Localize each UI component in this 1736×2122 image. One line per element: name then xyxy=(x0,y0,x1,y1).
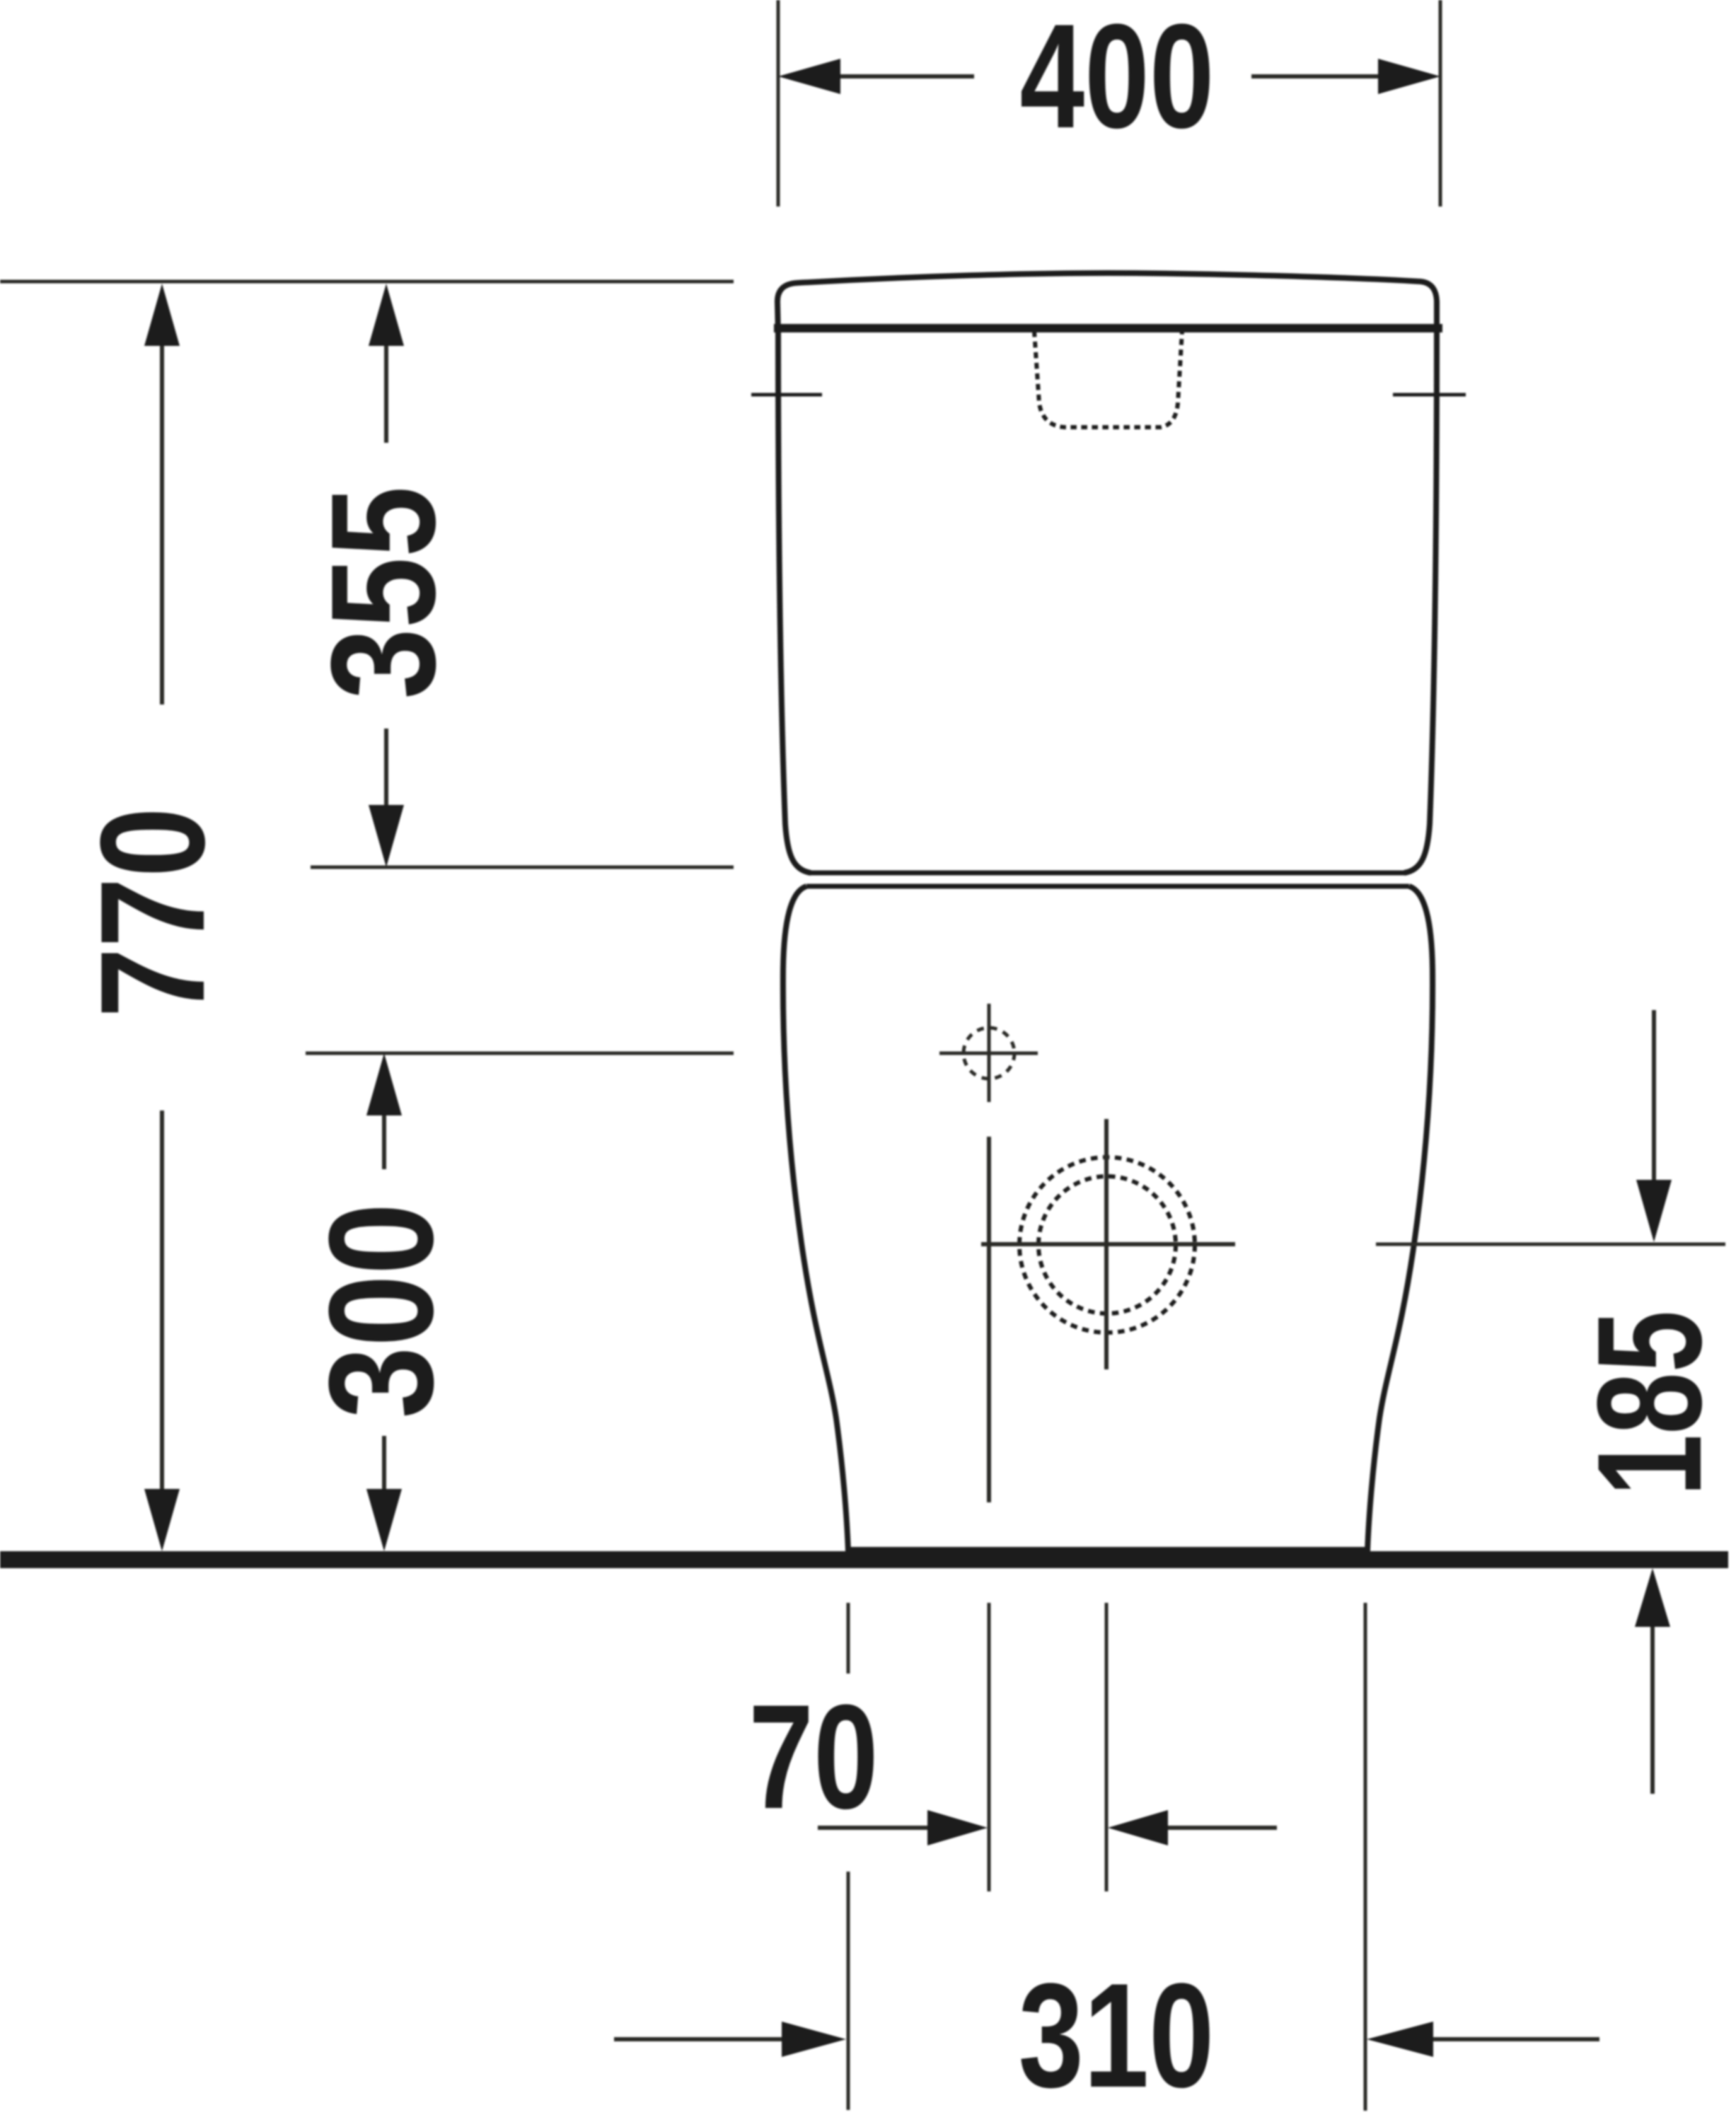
svg-text:70: 70 xyxy=(748,1674,878,1840)
svg-text:300: 300 xyxy=(298,1203,464,1419)
svg-text:310: 310 xyxy=(1019,1953,1215,2118)
svg-text:400: 400 xyxy=(1019,0,1214,160)
svg-text:770: 770 xyxy=(70,807,236,1018)
svg-text:185: 185 xyxy=(1567,1311,1732,1497)
svg-text:355: 355 xyxy=(300,486,466,699)
